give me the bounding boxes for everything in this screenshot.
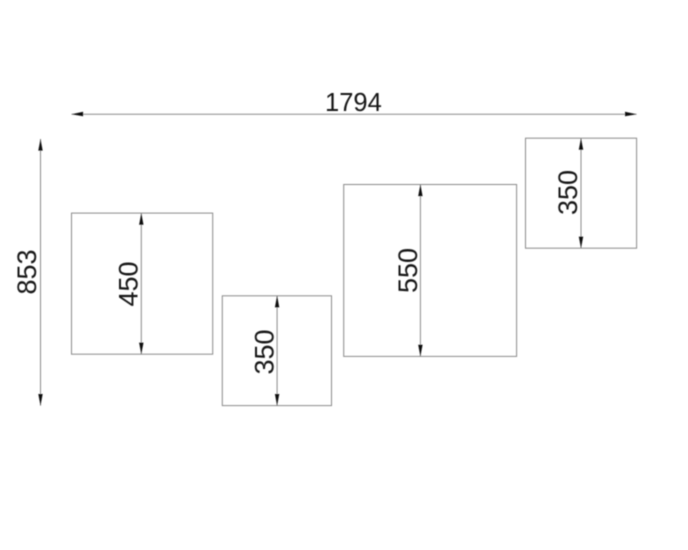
- svg-text:550: 550: [393, 248, 423, 293]
- svg-text:350: 350: [553, 170, 583, 215]
- svg-text:1794: 1794: [325, 89, 382, 117]
- svg-text:350: 350: [250, 329, 280, 374]
- svg-text:450: 450: [114, 261, 144, 306]
- svg-text:853: 853: [12, 249, 42, 294]
